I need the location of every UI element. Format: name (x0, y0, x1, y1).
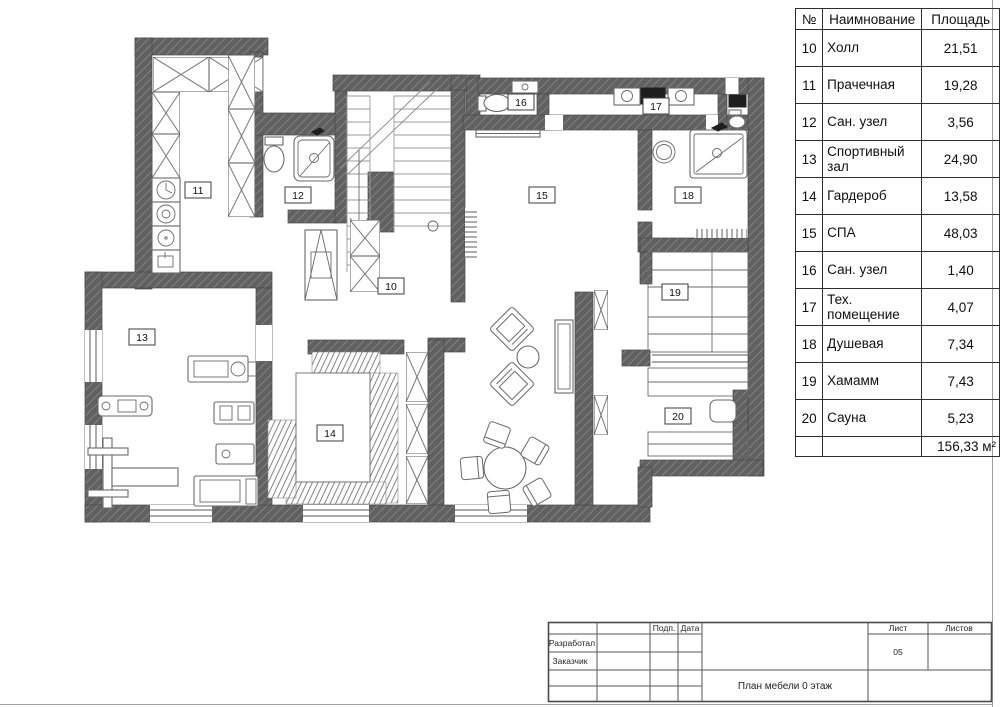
svg-text:18: 18 (682, 190, 694, 202)
svg-text:16: 16 (515, 97, 527, 109)
table-row: 16 Сан. узел 1,40 (796, 252, 1000, 289)
radiator-hall (465, 208, 477, 258)
svg-text:10: 10 (385, 281, 397, 293)
room-label-12: 12 (285, 187, 311, 203)
staircase (340, 82, 451, 292)
svg-text:13: 13 (136, 332, 148, 344)
table-row: 10 Холл 21,51 (796, 30, 1000, 67)
col-header-no: № (796, 9, 823, 30)
table-row: 12 Сан. узел 3,56 (796, 104, 1000, 141)
room-label-17: 17 (643, 98, 669, 114)
bathroom-12-fixtures (264, 128, 334, 181)
total-area-value: 156,33 м² (922, 437, 1000, 457)
floor-plan-sheet: 10 11 12 13 14 15 16 17 18 19 20 Подп. Д… (0, 0, 1000, 707)
hall-mirror-cabinet (305, 230, 337, 300)
room-label-13: 13 (129, 329, 155, 345)
sheet-label: Лист (889, 623, 908, 633)
room-label-11: 11 (185, 182, 211, 198)
svg-text:17: 17 (650, 101, 662, 113)
svg-text:15: 15 (536, 190, 548, 202)
room-label-10: 10 (378, 278, 404, 294)
svg-text:12: 12 (292, 190, 304, 202)
svg-text:19: 19 (669, 287, 681, 299)
table-row: 11 Прачечная 19,28 (796, 67, 1000, 104)
washer-dryer-appliances (152, 178, 180, 273)
col-header-area: Площадь (922, 9, 1000, 30)
table-row: 15 СПА 48,03 (796, 215, 1000, 252)
developed-label: Разработал (549, 638, 595, 648)
table-row: 18 Душевая 7,34 (796, 326, 1000, 363)
svg-text:14: 14 (324, 428, 336, 440)
signature-column-label: Подп. (653, 623, 676, 633)
room-label-20: 20 (665, 408, 691, 424)
table-row: 17 Тех. помещение 4,07 (796, 289, 1000, 326)
svg-text:20: 20 (672, 411, 684, 423)
gym-equipment (88, 356, 258, 508)
svg-text:11: 11 (193, 185, 204, 197)
room-label-15: 15 (529, 187, 555, 203)
sheets-label: Листов (945, 623, 973, 633)
drawing-title: План мебели 0 этаж (738, 680, 833, 692)
title-block: Подп. Дата Разработал Заказчик Лист Лист… (549, 623, 992, 702)
col-header-name: Наимнование (823, 9, 922, 30)
table-row: 19 Хамамм 7,43 (796, 363, 1000, 400)
room-label-16: 16 (508, 94, 534, 110)
legend-header-row: № Наимнование Площадь (796, 9, 1000, 30)
spa-furniture (460, 306, 573, 514)
shower-room-fixtures (653, 123, 747, 238)
wardrobe-rails (268, 352, 428, 504)
room-label-14: 14 (317, 425, 343, 441)
sheet-number: 05 (893, 647, 903, 657)
table-total-row: 156,33 м² (796, 437, 1000, 457)
table-row: 13 Спортивный зал 24,90 (796, 141, 1000, 178)
room-label-19: 19 (662, 284, 688, 300)
table-row: 14 Гардероб 13,58 (796, 178, 1000, 215)
table-row: 20 Сауна 5,23 (796, 400, 1000, 437)
room-label-18: 18 (675, 187, 701, 203)
client-label: Заказчик (553, 656, 588, 666)
room-legend-table: № Наимнование Площадь 10 Холл 21,51 11 П… (795, 8, 1000, 457)
sauna-heater (710, 400, 736, 422)
date-column-label: Дата (681, 623, 700, 633)
